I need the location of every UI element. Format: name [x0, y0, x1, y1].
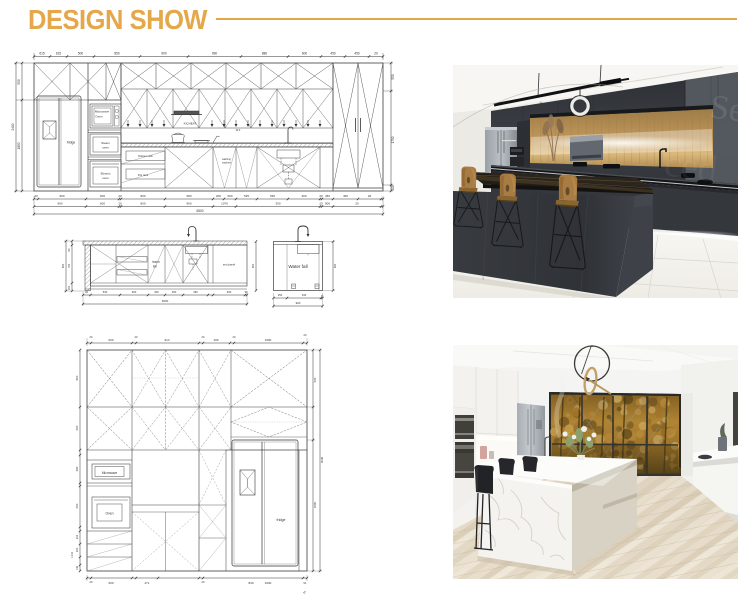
svg-text:Microwave: Microwave [102, 471, 117, 475]
svg-text:20: 20 [368, 194, 372, 198]
svg-text:V: V [307, 255, 309, 257]
svg-text:Se: Se [708, 88, 738, 129]
svg-text:60: 60 [67, 248, 71, 251]
svg-text:600: 600 [302, 52, 308, 56]
svg-text:2400: 2400 [11, 123, 15, 130]
svg-text:849: 849 [248, 581, 253, 585]
svg-text:Oven: Oven [95, 115, 103, 119]
svg-text:20: 20 [90, 580, 93, 584]
svg-text:960: 960 [186, 202, 191, 206]
svg-text:20: 20 [304, 333, 307, 337]
svg-text:920: 920 [296, 301, 301, 305]
svg-text:600: 600 [75, 425, 79, 430]
svg-text:450: 450 [325, 194, 330, 198]
svg-text:520: 520 [313, 377, 317, 382]
svg-text:600: 600 [227, 194, 232, 198]
svg-text:100: 100 [67, 285, 71, 290]
svg-text:680: 680 [186, 194, 191, 198]
svg-text:450: 450 [354, 52, 360, 56]
svg-text:20: 20 [319, 194, 323, 198]
svg-text:900: 900 [61, 263, 65, 268]
svg-text:ced: ced [662, 142, 720, 191]
svg-text:3000: 3000 [162, 299, 169, 303]
svg-text:Microwave: Microwave [95, 110, 110, 114]
svg-text:200: 200 [391, 185, 395, 191]
svg-text:1;210: 1;210 [71, 551, 74, 558]
svg-text:300: 300 [301, 194, 306, 198]
svg-text:450: 450 [330, 52, 336, 56]
svg-text:800: 800 [140, 202, 145, 206]
svg-text:450: 450 [193, 290, 198, 294]
svg-text:1750: 1750 [391, 136, 395, 143]
svg-text:end panel: end panel [223, 263, 236, 267]
svg-text:300: 300 [154, 290, 159, 294]
svg-text:oven: oven [102, 146, 109, 150]
svg-text:615: 615 [56, 52, 62, 56]
svg-text:450: 450 [343, 194, 348, 198]
svg-text:fridge: fridge [277, 518, 286, 522]
svg-text:550: 550 [17, 79, 21, 85]
svg-text:535: 535 [244, 194, 249, 198]
svg-text:20: 20 [135, 335, 138, 339]
svg-text:20: 20 [374, 52, 378, 56]
svg-text:Electric: Electric [101, 172, 111, 176]
svg-text:20: 20 [118, 202, 122, 206]
svg-text:20: 20 [90, 335, 93, 339]
svg-text:406: 406 [213, 338, 218, 342]
svg-text:20: 20 [202, 580, 205, 584]
svg-text:530: 530 [103, 290, 108, 294]
svg-text:2200: 2200 [313, 501, 317, 508]
svg-text:1850: 1850 [17, 142, 21, 149]
svg-text:300: 300 [275, 202, 280, 206]
svg-text:1000: 1000 [265, 338, 272, 342]
svg-text:600: 600 [75, 503, 79, 508]
svg-text:1000: 1000 [265, 581, 272, 585]
svg-text:6500: 6500 [196, 209, 203, 213]
svg-text:600: 600 [108, 338, 113, 342]
svg-text:535: 535 [270, 194, 275, 198]
svg-text:450: 450 [172, 290, 177, 294]
svg-text:471: 471 [144, 581, 149, 585]
svg-text:20: 20 [302, 589, 307, 594]
svg-text:KICHEAT: KICHEAT [184, 122, 197, 126]
svg-text:900: 900 [161, 52, 167, 56]
svg-text:20: 20 [319, 202, 323, 206]
svg-text:210: 210 [75, 547, 79, 552]
svg-text:880: 880 [262, 52, 268, 56]
svg-text:900: 900 [251, 263, 255, 268]
svg-text:800: 800 [140, 194, 145, 198]
svg-text:900: 900 [325, 202, 330, 206]
svg-text:640: 640 [302, 293, 307, 297]
svg-text:1070: 1070 [221, 202, 228, 206]
svg-text:600: 600 [100, 194, 105, 198]
svg-text:550: 550 [391, 74, 395, 80]
svg-text:51: 51 [304, 581, 307, 585]
svg-text:Pot rack: Pot rack [138, 173, 149, 177]
svg-text:20: 20 [34, 194, 38, 198]
svg-text:Oven: Oven [105, 512, 113, 516]
svg-text:600: 600 [108, 581, 113, 585]
svg-text:40: 40 [85, 290, 88, 294]
svg-text:30: 30 [245, 290, 248, 294]
svg-text:600: 600 [100, 202, 105, 206]
svg-text:210: 210 [75, 534, 79, 539]
svg-text:800: 800 [75, 375, 79, 380]
svg-text:750: 750 [67, 263, 71, 268]
svg-text:bin: bin [153, 265, 157, 269]
svg-text:trash: trash [152, 260, 159, 264]
svg-text:900: 900 [333, 263, 337, 268]
svg-text:20: 20 [118, 194, 122, 198]
svg-text:615: 615 [39, 52, 45, 56]
svg-text:600: 600 [132, 290, 137, 294]
svg-text:machine: machine [222, 162, 232, 165]
svg-text:100: 100 [76, 565, 79, 570]
svg-text:20: 20 [233, 335, 236, 339]
svg-text:200: 200 [216, 194, 221, 198]
svg-text:380: 380 [75, 466, 79, 471]
svg-text:oven: oven [102, 176, 109, 180]
svg-text:600: 600 [227, 290, 232, 294]
svg-text:990: 990 [212, 52, 218, 56]
svg-text:3048: 3048 [320, 456, 324, 463]
svg-text:20: 20 [202, 335, 205, 339]
svg-text:W.F: W.F [236, 128, 241, 132]
svg-text:250: 250 [278, 293, 283, 297]
svg-text:Water fall: Water fall [288, 264, 307, 269]
svg-text:990: 990 [57, 202, 62, 206]
svg-text:990: 990 [59, 194, 64, 198]
svg-text:Steam: Steam [101, 141, 110, 145]
svg-text:20: 20 [355, 202, 359, 206]
svg-text:914: 914 [164, 338, 169, 342]
svg-text:Dishes rack: Dishes rack [138, 154, 153, 158]
svg-text:850: 850 [114, 52, 120, 56]
svg-text:500: 500 [78, 52, 84, 56]
svg-text:fridge: fridge [67, 141, 76, 145]
